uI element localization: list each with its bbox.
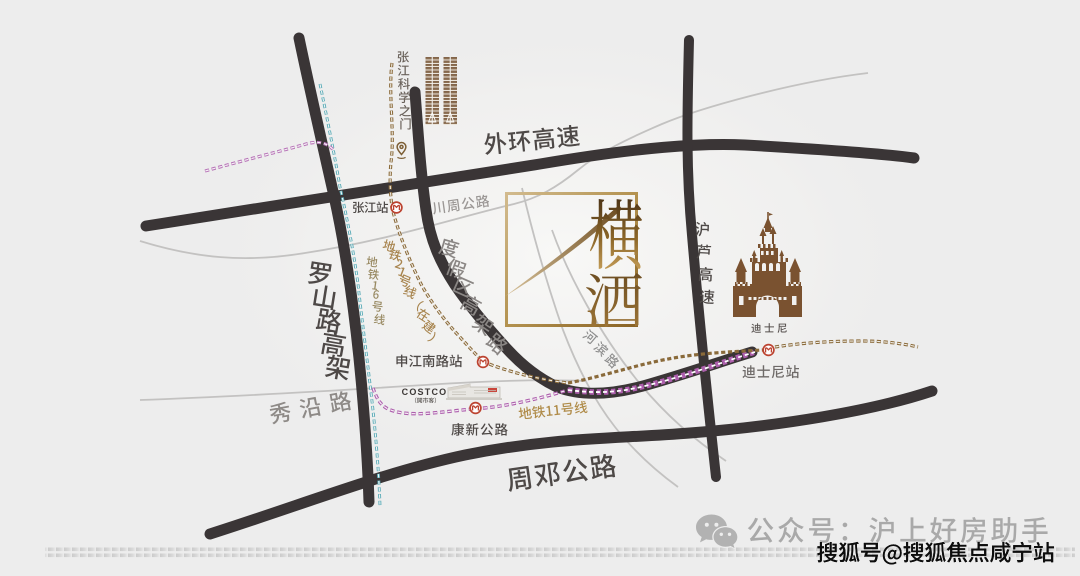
svg-text:COSTCO: COSTCO [402,387,448,397]
